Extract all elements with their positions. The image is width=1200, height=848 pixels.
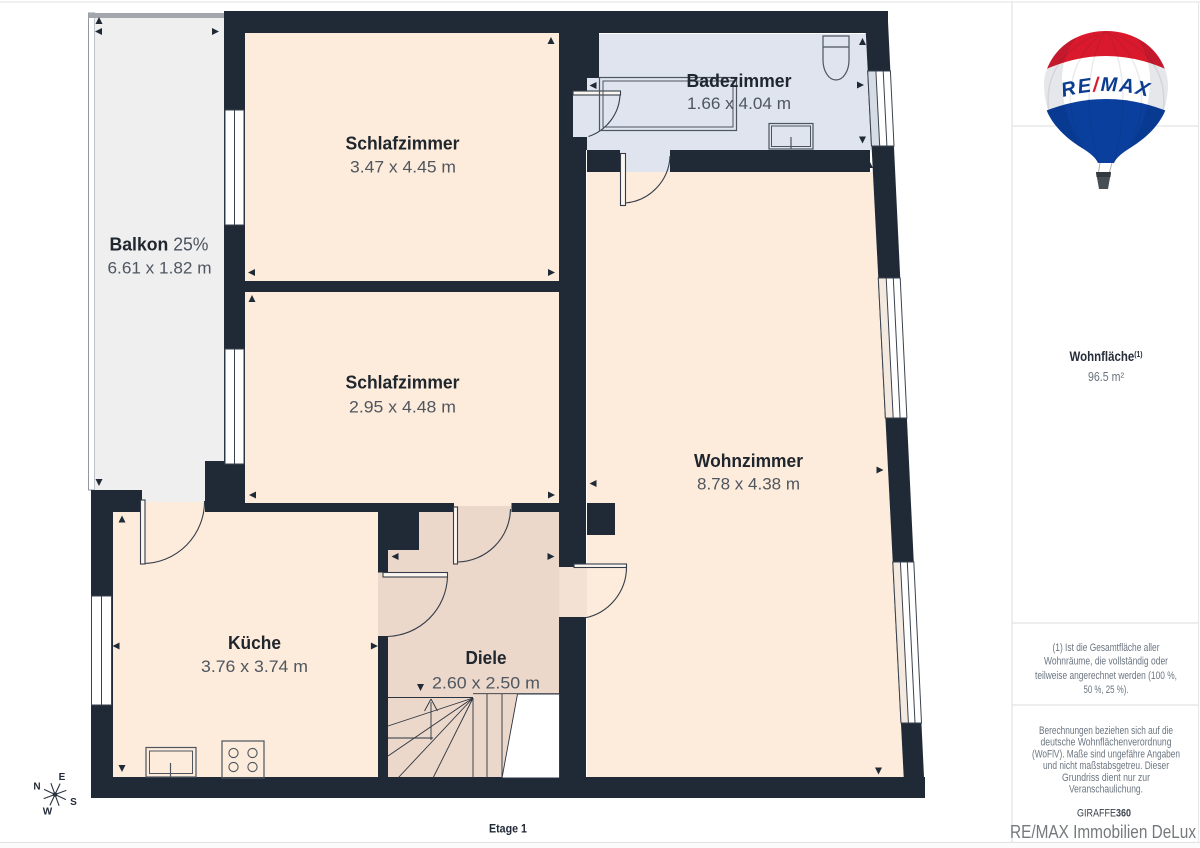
svg-text:8.78 x 4.38 m: 8.78 x 4.38 m	[697, 476, 800, 494]
svg-text:6.61 x 1.82 m: 6.61 x 1.82 m	[108, 260, 212, 278]
svg-text:GIRAFFE360: GIRAFFE360	[1077, 808, 1131, 820]
svg-text:Küche: Küche	[228, 632, 281, 653]
svg-text:3.47 x 4.45 m: 3.47 x 4.45 m	[350, 159, 456, 177]
svg-text:Veranschaulichung.: Veranschaulichung.	[1069, 784, 1143, 796]
svg-text:Grundriss dient nur zur: Grundriss dient nur zur	[1062, 772, 1150, 784]
svg-text:Berechnungen beziehen sich auf: Berechnungen beziehen sich auf die	[1039, 725, 1173, 737]
svg-text:S: S	[70, 797, 77, 808]
svg-text:1.66 x 4.04 m: 1.66 x 4.04 m	[687, 95, 791, 113]
svg-text:2.60 x 2.50 m: 2.60 x 2.50 m	[432, 675, 540, 693]
svg-text:deutsche Wohnflächenverordnung: deutsche Wohnflächenverordnung	[1041, 737, 1172, 749]
svg-text:teilweise angerechnet werden (: teilweise angerechnet werden (100 %,	[1035, 670, 1177, 682]
svg-text:Wohnzimmer: Wohnzimmer	[694, 450, 803, 471]
svg-text:3.76 x 3.74 m: 3.76 x 3.74 m	[201, 658, 308, 676]
svg-text:N: N	[33, 782, 40, 793]
svg-text:und nicht maßstabsgetreu. Dies: und nicht maßstabsgetreu. Dieser	[1043, 760, 1169, 772]
svg-text:Schlafzimmer: Schlafzimmer	[346, 133, 460, 154]
svg-text:50 %, 25 %).: 50 %, 25 %).	[1084, 684, 1129, 696]
svg-text:Wohnfläche(1): Wohnfläche(1)	[1070, 349, 1143, 364]
svg-text:2.95 x 4.48 m: 2.95 x 4.48 m	[349, 399, 456, 417]
svg-text:Balkon 25%: Balkon 25%	[110, 234, 209, 255]
svg-text:(WoFlV). Maße sind ungefähre A: (WoFlV). Maße sind ungefähre Angaben	[1032, 748, 1180, 760]
svg-text:W: W	[43, 807, 53, 818]
svg-text:Wohnräume, die vollständig ode: Wohnräume, die vollständig oder	[1044, 656, 1168, 668]
svg-text:E: E	[59, 772, 66, 783]
svg-text:96.5 m²: 96.5 m²	[1088, 370, 1124, 384]
svg-text:(1) Ist die Gesamtfläche aller: (1) Ist die Gesamtfläche aller	[1053, 642, 1160, 654]
svg-text:Badezimmer: Badezimmer	[687, 70, 792, 91]
svg-text:Etage 1: Etage 1	[489, 824, 528, 836]
svg-text:Diele: Diele	[466, 647, 507, 668]
svg-text:Schlafzimmer: Schlafzimmer	[346, 372, 460, 393]
svg-text:RE/MAX Immobilien DeLux: RE/MAX Immobilien DeLux	[1010, 822, 1196, 842]
